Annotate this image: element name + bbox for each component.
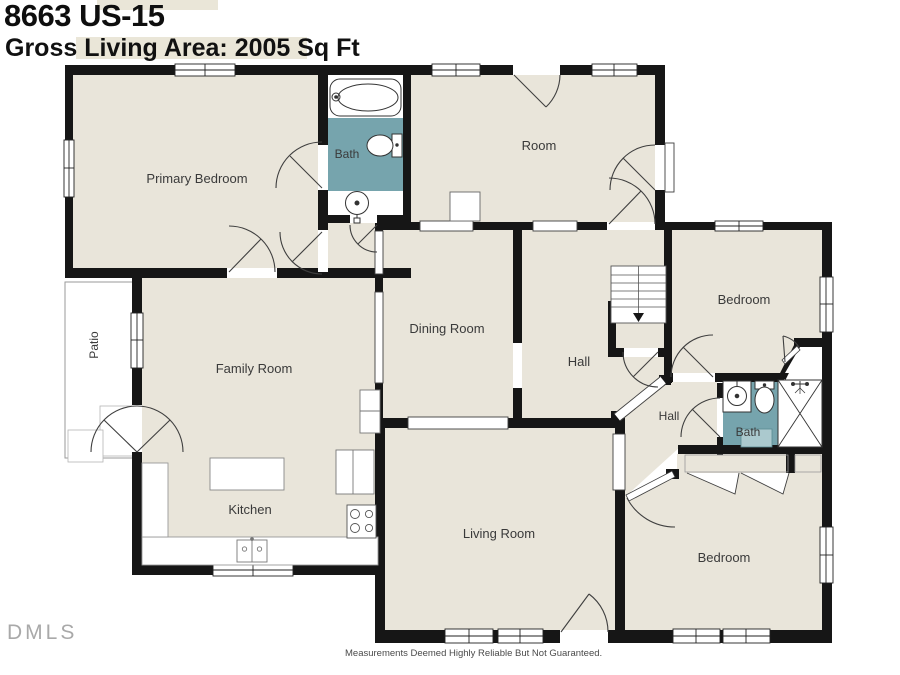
- floor-plan: Primary Bedroom Bath Room Bedroom Patio …: [0, 0, 900, 675]
- room-label-living-room: Living Room: [463, 526, 535, 541]
- window: [498, 629, 543, 643]
- staircase: [611, 266, 666, 323]
- room-label-bath-upper: Bath: [335, 147, 360, 161]
- window: [445, 629, 493, 643]
- kitchen-sink-icon: [237, 538, 267, 562]
- window: [723, 629, 770, 643]
- room-label-hall-upper: Hall: [568, 354, 591, 369]
- room-closet: [450, 192, 480, 221]
- window: [592, 64, 637, 76]
- room-label-bedroom-right: Bedroom: [718, 292, 771, 307]
- window: [820, 527, 833, 583]
- kitchen-island: [210, 458, 284, 490]
- refrigerator-icon: [336, 450, 374, 494]
- stove-icon: [347, 505, 376, 538]
- room-label-dining-room: Dining Room: [409, 321, 484, 336]
- floor-plan-page: 8663 US-15 Gross Living Area: 2005 Sq Ft: [0, 0, 900, 675]
- window: [131, 313, 143, 368]
- room-label-primary-bedroom: Primary Bedroom: [146, 171, 247, 186]
- room-label-patio: Patio: [87, 331, 101, 359]
- window: [820, 277, 833, 332]
- window: [213, 564, 293, 576]
- toilet-icon: [367, 134, 402, 157]
- toilet-icon-2: [755, 381, 774, 413]
- window: [673, 629, 720, 643]
- room-label-bath-lower: Bath: [736, 425, 761, 439]
- room-label-kitchen: Kitchen: [228, 502, 271, 517]
- window: [715, 221, 763, 231]
- room-label-hall-lower: Hall: [659, 409, 680, 423]
- gross-living-area: Gross Living Area: 2005 Sq Ft: [5, 34, 360, 63]
- window: [175, 64, 235, 76]
- dmls-watermark: DMLS: [7, 621, 77, 645]
- room-label-family-room: Family Room: [216, 361, 293, 376]
- shower-icon: [778, 380, 822, 447]
- window: [64, 140, 74, 197]
- pantry-cabinet: [360, 390, 380, 433]
- room-label-bedroom-bottom: Bedroom: [698, 550, 751, 565]
- disclaimer-text: Measurements Deemed Highly Reliable But …: [345, 648, 602, 659]
- room-label-room: Room: [522, 138, 557, 153]
- page-title: 8663 US-15: [4, 0, 164, 34]
- bathtub-icon: [330, 79, 401, 116]
- window: [432, 64, 480, 76]
- vanity-sink-icon: [723, 381, 751, 412]
